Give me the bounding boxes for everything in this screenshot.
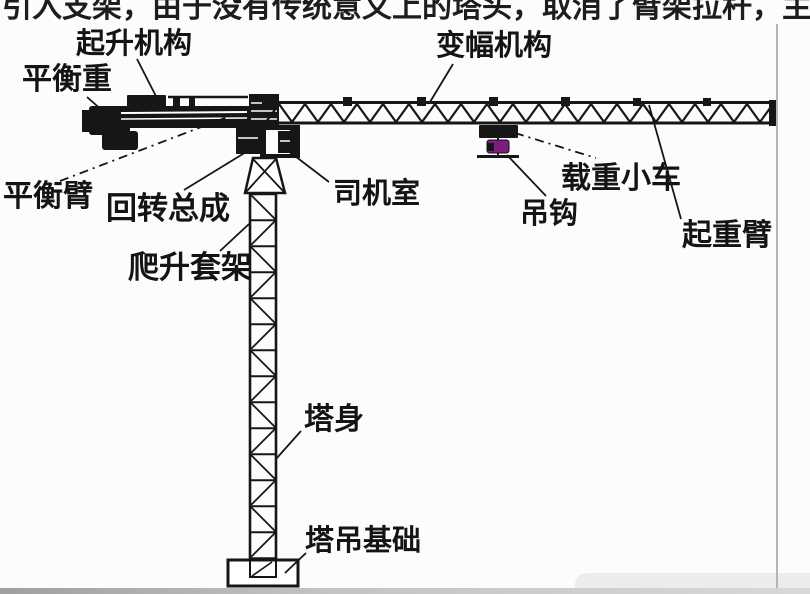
right-divider-line [776, 24, 778, 594]
climbing-frame-unit [245, 158, 285, 193]
label-luffing-mechanism: 变幅机构 [436, 31, 552, 61]
label-climbing-frame: 爬升套架 [128, 252, 252, 285]
tower-foundation-block [228, 560, 298, 586]
label-counter-jib: 平衡臂 [3, 181, 93, 213]
label-lifting-jib: 起重臂 [682, 220, 772, 252]
label-hoisting-mechanism: 起升机构 [76, 29, 192, 59]
operator-cab-unit [260, 125, 300, 158]
label-hook: 吊钩 [520, 199, 578, 229]
leader-slewing-assembly [184, 149, 251, 190]
leader-tower-body [276, 431, 301, 459]
label-operator-cab: 司机室 [333, 179, 420, 209]
leader-load-trolley-dashed [515, 133, 596, 158]
leader-operator-cab [291, 153, 329, 182]
label-tower-foundation: 塔吊基础 [305, 526, 421, 556]
leader-hook [507, 155, 546, 196]
label-load-trolley: 载重小车 [561, 163, 681, 195]
label-tower-body: 塔身 [304, 404, 364, 436]
screenshot-root: 引入支架，由于没有传统意义上的塔头，取消了臂架拉杆，主 [0, 0, 810, 594]
label-counterweight: 平衡重 [22, 64, 112, 96]
hook-assembly [477, 138, 519, 157]
label-slewing-assembly: 回转总成 [106, 193, 230, 226]
lifting-jib-truss [262, 97, 776, 126]
crane-diagram [0, 0, 810, 594]
load-trolley-unit [479, 125, 518, 138]
tower-body-lattice [250, 192, 276, 562]
leader-climbing-frame [220, 224, 249, 251]
leader-luffing-mechanism [430, 64, 453, 102]
bottom-edge-bar [0, 588, 810, 594]
leader-lines [60, 59, 681, 573]
